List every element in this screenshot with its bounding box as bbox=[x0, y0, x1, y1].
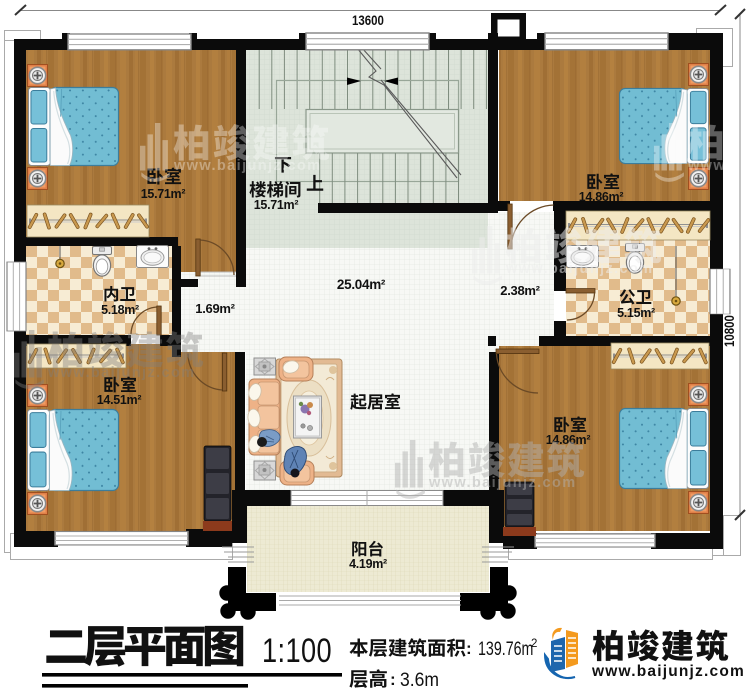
svg-text:www.baijunjz.com: www.baijunjz.com bbox=[428, 475, 577, 491]
svg-text::: : bbox=[466, 639, 472, 658]
svg-text:5.18m²: 5.18m² bbox=[101, 303, 139, 317]
svg-text:15.71m²: 15.71m² bbox=[254, 198, 299, 212]
svg-text:13600: 13600 bbox=[352, 13, 384, 28]
svg-text:3.6m: 3.6m bbox=[400, 668, 439, 690]
svg-text:www.baijunjz.com: www.baijunjz.com bbox=[687, 158, 750, 174]
svg-text:www.baijunjz.com: www.baijunjz.com bbox=[505, 261, 654, 277]
svg-text:2: 2 bbox=[531, 638, 537, 650]
svg-text:5.15m²: 5.15m² bbox=[617, 306, 655, 320]
svg-text:1.69m²: 1.69m² bbox=[195, 301, 235, 316]
svg-text:15.71m²: 15.71m² bbox=[141, 187, 186, 201]
svg-text:www.baijunjz.com: www.baijunjz.com bbox=[591, 663, 745, 680]
svg-text:4.19m²: 4.19m² bbox=[349, 557, 387, 571]
svg-text:14.86m²: 14.86m² bbox=[579, 190, 624, 204]
svg-text:www.baijunjz.com: www.baijunjz.com bbox=[173, 158, 322, 174]
svg-text::: : bbox=[390, 670, 396, 689]
svg-text:1:100: 1:100 bbox=[262, 631, 332, 670]
svg-text:2.38m²: 2.38m² bbox=[500, 283, 540, 298]
svg-text:25.04m²: 25.04m² bbox=[337, 277, 386, 292]
svg-text:14.51m²: 14.51m² bbox=[97, 393, 142, 407]
svg-text:10800: 10800 bbox=[722, 315, 737, 347]
svg-text:www.baijunjz.com: www.baijunjz.com bbox=[47, 365, 196, 381]
svg-text:139.76m: 139.76m bbox=[478, 638, 533, 660]
